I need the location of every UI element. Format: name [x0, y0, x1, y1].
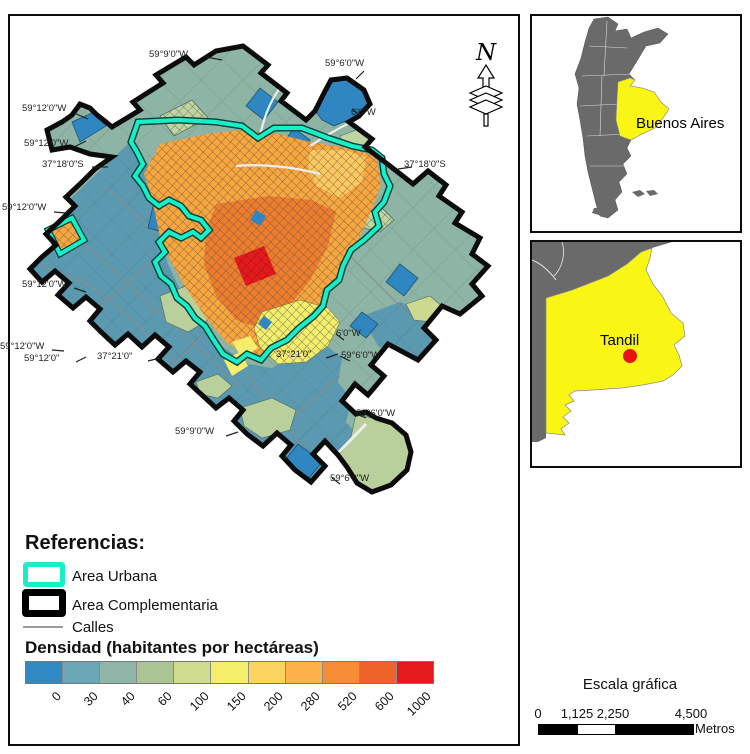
coord-label: 59°12'0"W: [2, 202, 46, 213]
scale-unit-label: Metros: [695, 721, 735, 736]
coord-label: 59°6'0"W: [356, 408, 395, 419]
scale-tick-label: 2,250: [588, 706, 638, 721]
density-title: Densidad (habitantes por hectáreas): [25, 638, 319, 658]
density-ramp-cell: [63, 662, 100, 683]
coord-label: 59°6'0"W: [325, 58, 364, 69]
coord-label: 37°18'0"S: [404, 159, 446, 170]
density-ramp-cell: [211, 662, 248, 683]
streets-swatch: [23, 626, 63, 628]
coord-label: 6'0"W: [351, 107, 376, 118]
buenos-aires-label: Buenos Aires: [636, 115, 724, 132]
density-ramp-cell: [100, 662, 137, 683]
legend-title: Referencias:: [25, 532, 145, 555]
density-ramp-cell: [137, 662, 174, 683]
coord-label: 59°6'0"W: [330, 473, 369, 484]
scale-bar-title: Escala gráfica: [530, 676, 730, 693]
main-map-panel: N: [8, 14, 520, 746]
map-figure: N 59°9'0"W 59°6'0"W 6'0"W 59°12'0"W 59°1…: [0, 0, 750, 754]
density-ramp-cell: [26, 662, 63, 683]
buenos-aires-map-svg: [532, 242, 740, 466]
coord-label: 59°6'0"W: [341, 350, 380, 361]
coord-label: 59°9'0"W: [175, 426, 214, 437]
north-arrow-icon: N: [470, 40, 502, 126]
density-ramp-cell: [323, 662, 360, 683]
coord-label: 59°12'0"W: [22, 279, 66, 290]
complementary-area-swatch: [22, 589, 66, 617]
coord-label: 59°9'0"W: [149, 49, 188, 60]
coord-label: 37°18'0"S: [42, 159, 84, 170]
scale-bar-track: [538, 724, 694, 735]
coord-label: 37°21'0": [97, 351, 132, 362]
coord-label: 59°12'0": [24, 353, 59, 364]
coord-label: 59°12'0"W: [22, 103, 66, 114]
coord-label: 59°12'0"W: [0, 341, 44, 352]
legend-item-streets: Calles: [72, 619, 114, 636]
density-ramp-cell: [397, 662, 433, 683]
density-ramp-cell: [360, 662, 397, 683]
tandil-marker: [623, 349, 637, 363]
coord-label: 6'0"W: [336, 328, 361, 339]
legend-item-complementary: Area Complementaria: [72, 597, 218, 614]
coord-label: 37°21'0": [276, 349, 311, 360]
density-ramp: [25, 661, 434, 684]
scale-tick-label: 0: [528, 706, 548, 721]
north-label: N: [475, 40, 497, 66]
density-ramp-cell: [174, 662, 211, 683]
density-ramp-cell: [249, 662, 286, 683]
legend-item-urban: Area Urbana: [72, 568, 157, 585]
density-ramp-cell: [286, 662, 323, 683]
coord-label: 59°12'0"W: [24, 138, 68, 149]
scale-tick-label: 4,500: [666, 706, 716, 721]
tandil-label: Tandil: [600, 332, 639, 349]
inset-buenos-aires: [530, 240, 742, 468]
urban-area-swatch: [23, 562, 65, 587]
